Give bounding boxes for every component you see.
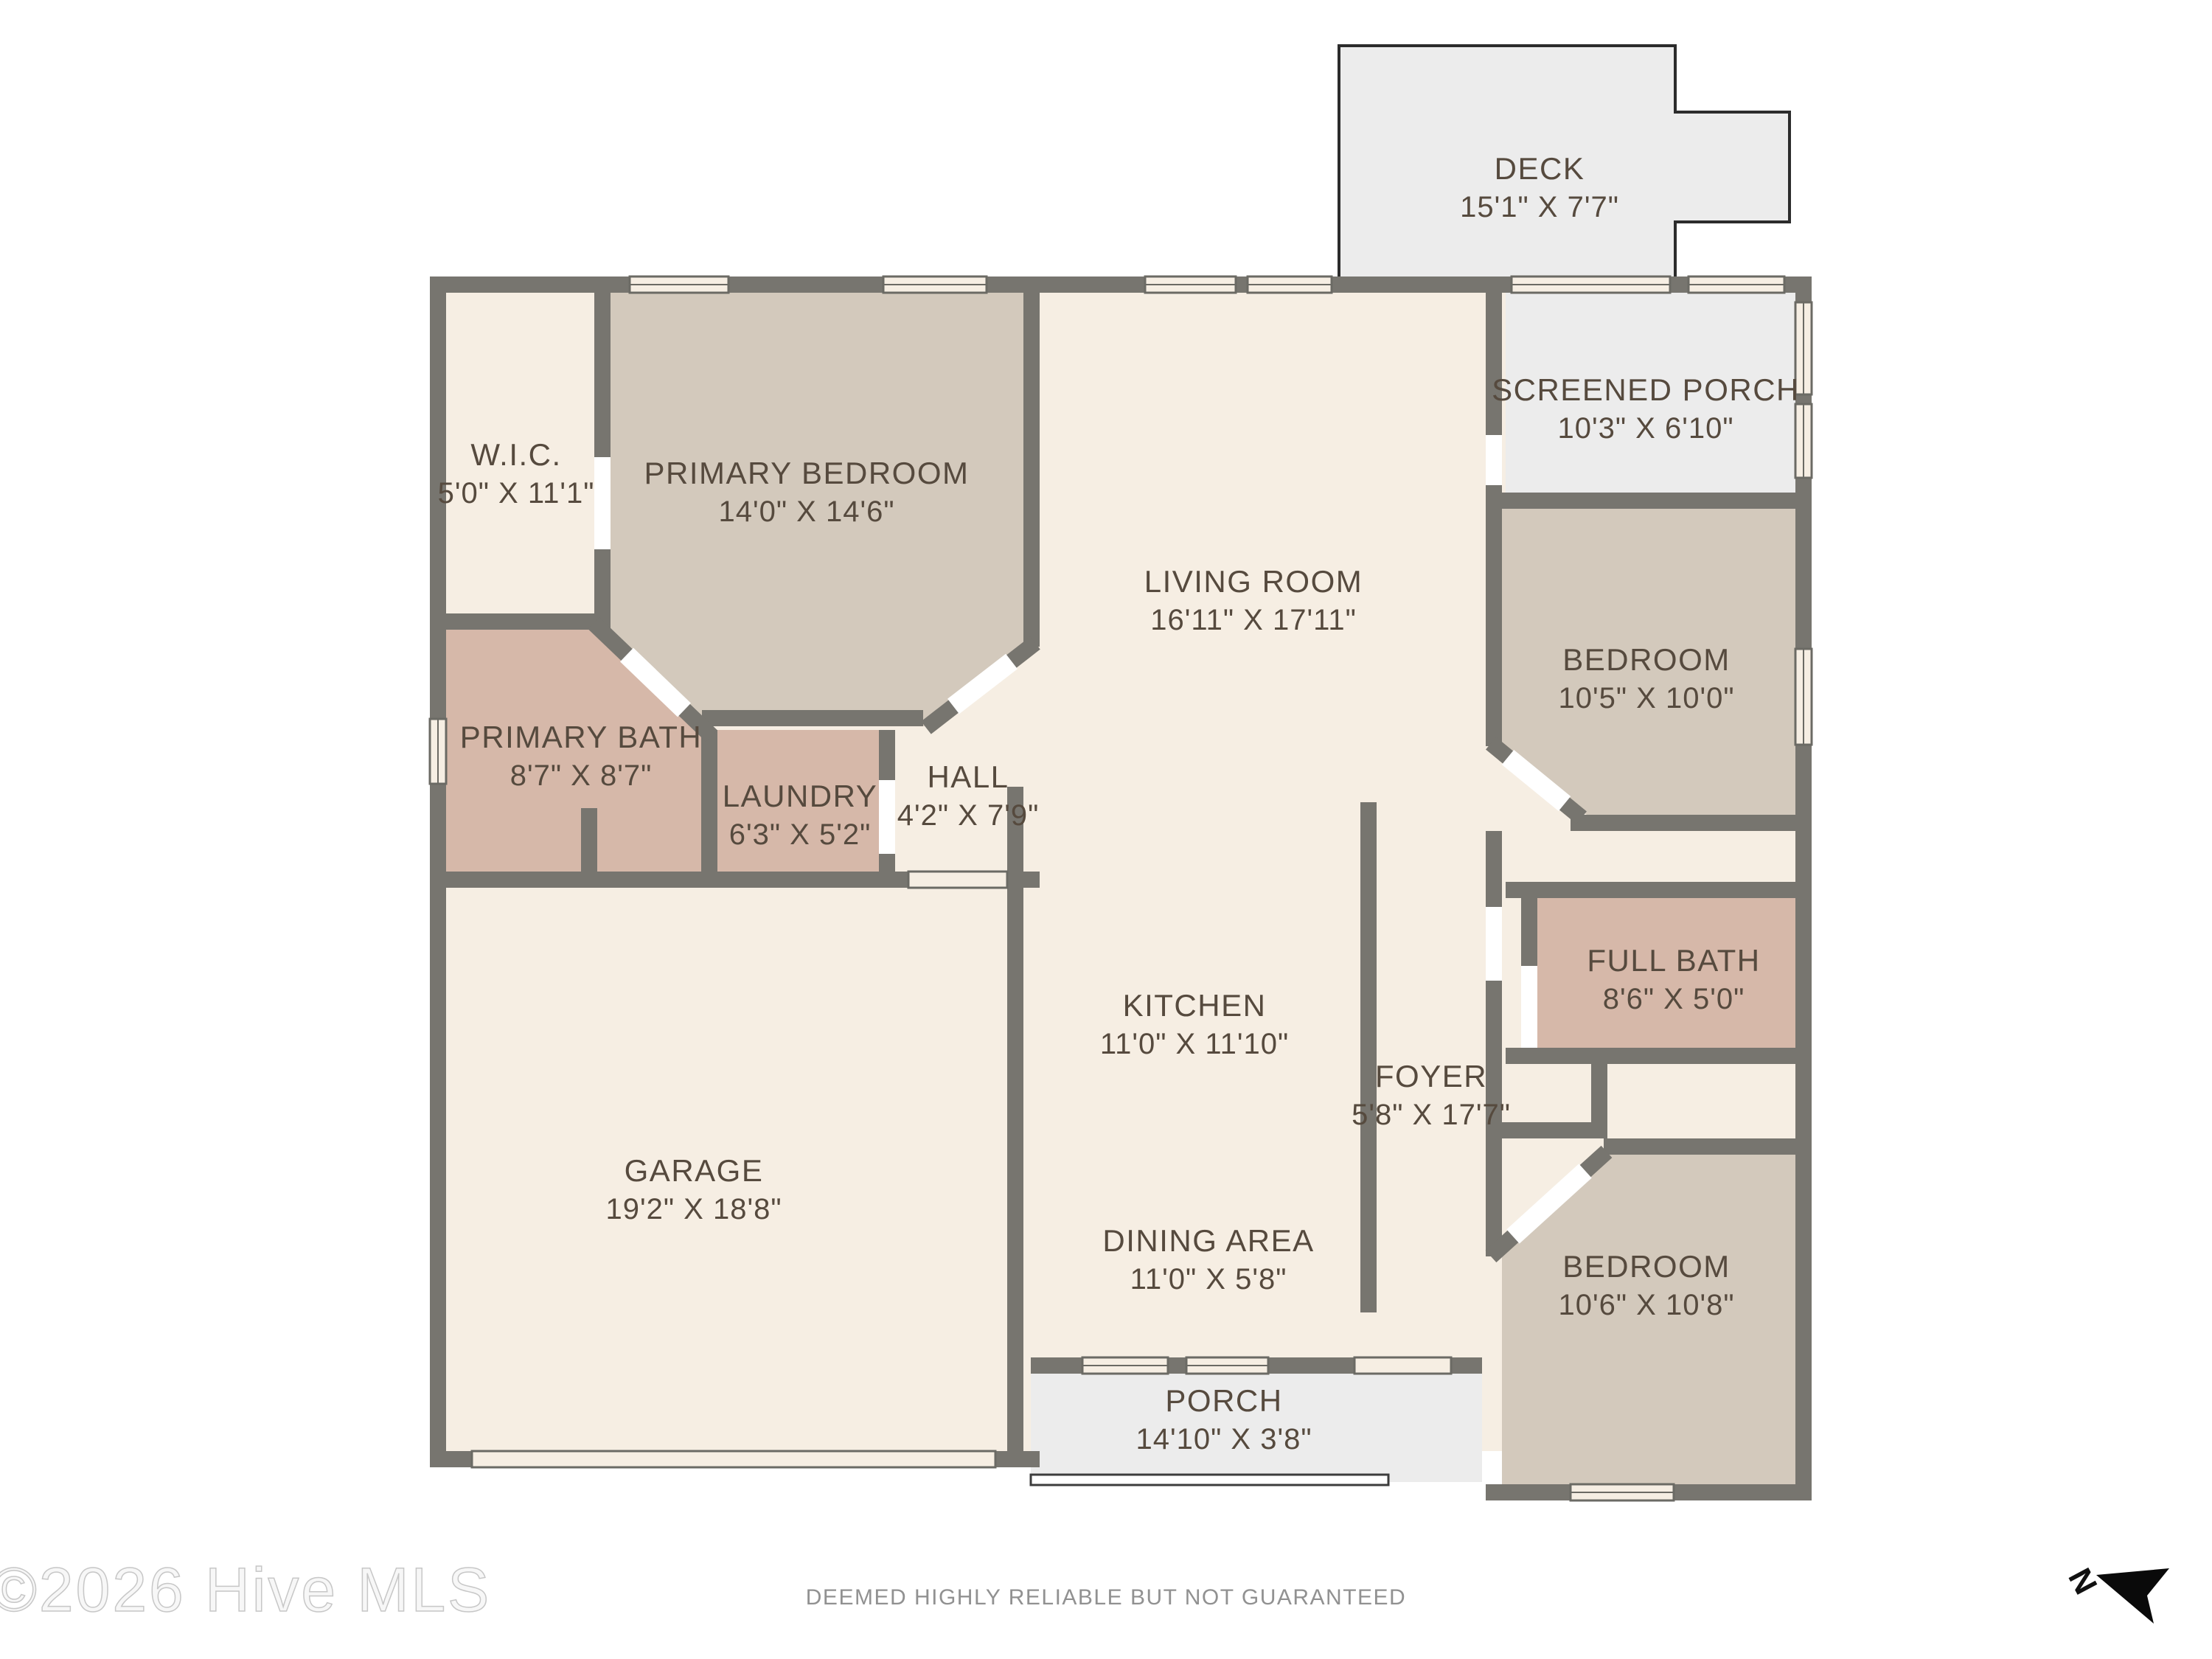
room-label-screened-porch: SCREENED PORCH 10'3" X 6'10": [1492, 372, 1800, 445]
room-label-garage: GARAGE 19'2" X 18'8": [605, 1153, 782, 1226]
room-dims: 8'6" X 5'0": [1587, 983, 1760, 1016]
room-label-living-room: LIVING ROOM 16'11" X 17'11": [1144, 564, 1363, 637]
room-name: DINING AREA: [1102, 1223, 1314, 1259]
room-name: PRIMARY BEDROOM: [644, 456, 969, 491]
room-dims: 10'5" X 10'0": [1558, 682, 1734, 715]
room-dims: 15'1" X 7'7": [1460, 191, 1619, 224]
floorplan-drawing: [0, 0, 2212, 1659]
room-name: FULL BATH: [1587, 943, 1760, 978]
footer-disclaimer: DEEMED HIGHLY RELIABLE BUT NOT GUARANTEE…: [0, 1585, 2212, 1610]
room-name: BEDROOM: [1558, 642, 1734, 678]
room-label-bedroom-bottom: BEDROOM 10'6" X 10'8": [1558, 1249, 1734, 1322]
room-label-foyer: FOYER 5'8" X 17'7": [1352, 1059, 1511, 1132]
room-label-hall: HALL 4'2" X 7'9": [897, 759, 1040, 832]
north-compass: N: [2042, 1534, 2205, 1652]
room-label-primary-bedroom: PRIMARY BEDROOM 14'0" X 14'6": [644, 456, 969, 529]
room-label-laundry: LAUNDRY 6'3" X 5'2": [723, 779, 877, 852]
room-label-full-bath: FULL BATH 8'6" X 5'0": [1587, 943, 1760, 1016]
room-label-wic: W.I.C. 5'0" X 11'1": [438, 437, 595, 510]
room-name: W.I.C.: [438, 437, 595, 473]
room-name: PORCH: [1135, 1383, 1312, 1419]
room-name: PRIMARY BATH: [460, 720, 702, 755]
room-dims: 11'0" X 11'10": [1100, 1028, 1289, 1061]
room-dims: 14'0" X 14'6": [644, 495, 969, 529]
room-dims: 11'0" X 5'8": [1102, 1263, 1314, 1296]
floorplan-page: { "meta": { "watermark": "©2026 Hive MLS…: [0, 0, 2212, 1659]
room-name: SCREENED PORCH: [1492, 372, 1800, 408]
room-dims: 5'8" X 17'7": [1352, 1099, 1511, 1132]
room-label-primary-bath: PRIMARY BATH 8'7" X 8'7": [460, 720, 702, 793]
room-dims: 8'7" X 8'7": [460, 759, 702, 793]
room-dims: 4'2" X 7'9": [897, 799, 1040, 832]
room-dims: 16'11" X 17'11": [1144, 604, 1363, 637]
room-name: HALL: [897, 759, 1040, 795]
room-label-kitchen: KITCHEN 11'0" X 11'10": [1100, 988, 1289, 1061]
north-label: N: [2060, 1562, 2104, 1601]
room-dims: 6'3" X 5'2": [723, 818, 877, 852]
room-dims: 10'3" X 6'10": [1492, 412, 1800, 445]
room-label-bedroom-right: BEDROOM 10'5" X 10'0": [1558, 642, 1734, 715]
room-label-dining-area: DINING AREA 11'0" X 5'8": [1102, 1223, 1314, 1296]
room-dims: 5'0" X 11'1": [438, 477, 595, 510]
room-name: GARAGE: [605, 1153, 782, 1189]
room-name: LAUNDRY: [723, 779, 877, 814]
porch-step: [1031, 1475, 1388, 1485]
room-name: DECK: [1460, 151, 1619, 187]
room-dims: 14'10" X 3'8": [1135, 1423, 1312, 1456]
room-label-porch: PORCH 14'10" X 3'8": [1135, 1383, 1312, 1456]
room-name: BEDROOM: [1558, 1249, 1734, 1284]
room-dims: 19'2" X 18'8": [605, 1193, 782, 1226]
room-name: LIVING ROOM: [1144, 564, 1363, 599]
room-dims: 10'6" X 10'8": [1558, 1289, 1734, 1322]
room-name: KITCHEN: [1100, 988, 1289, 1023]
room-name: FOYER: [1352, 1059, 1511, 1094]
room-label-deck: DECK 15'1" X 7'7": [1460, 151, 1619, 224]
